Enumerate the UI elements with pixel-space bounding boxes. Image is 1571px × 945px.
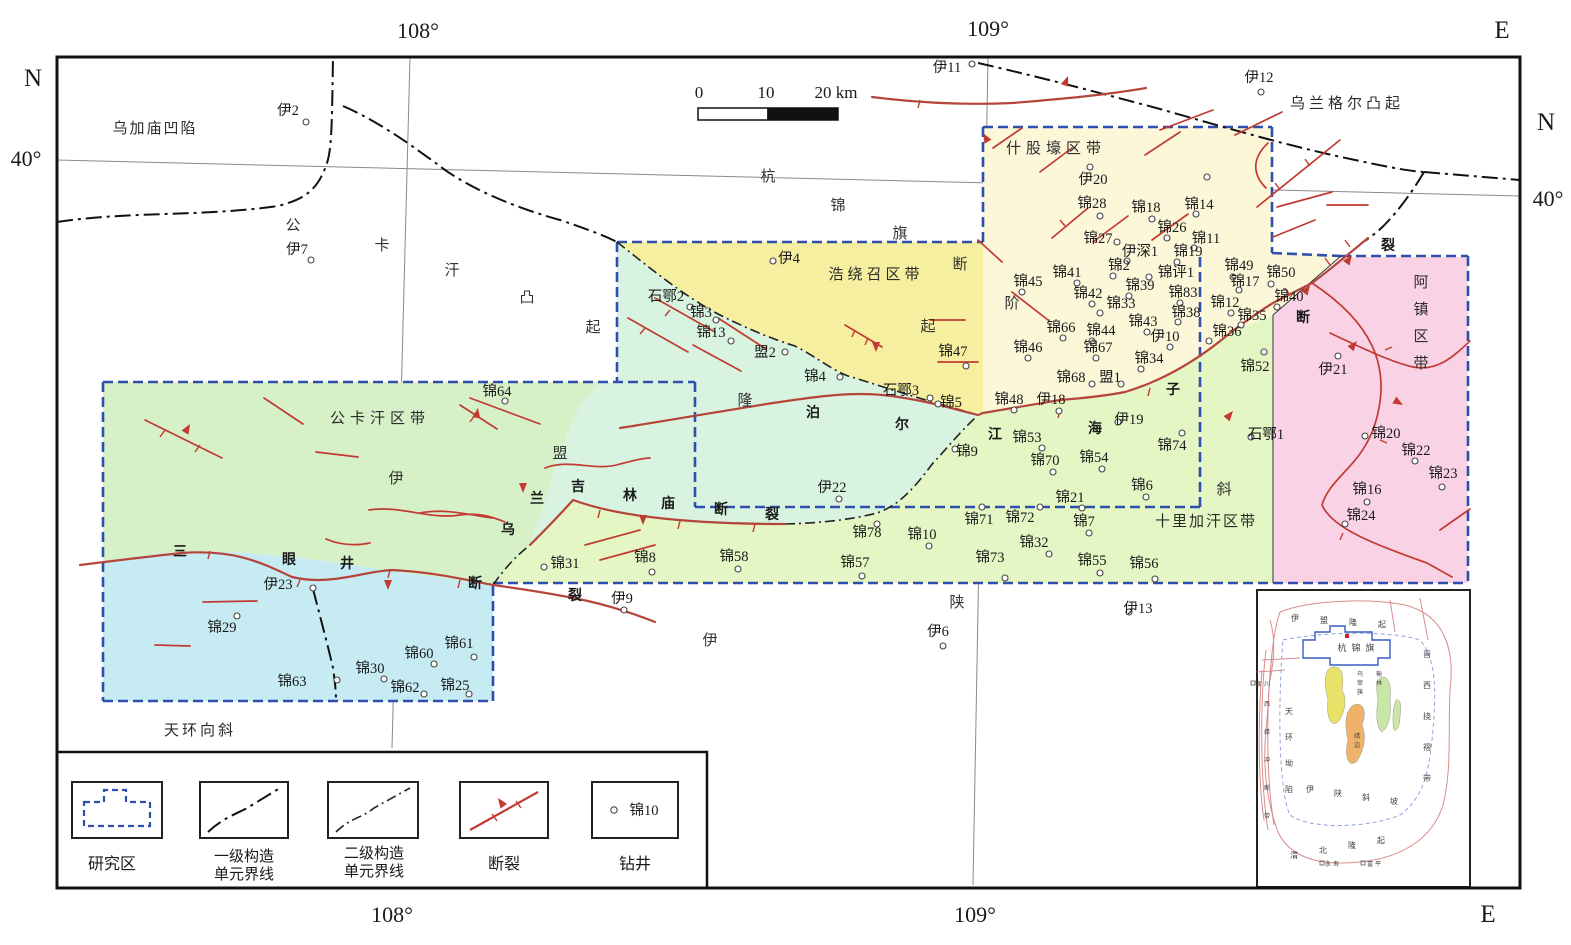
inset-label-char: 陕 xyxy=(1334,788,1342,798)
well-marker xyxy=(1261,349,1267,355)
fault-name-char: 子 xyxy=(1166,382,1180,398)
place-char: 卡 xyxy=(374,237,389,254)
well-marker xyxy=(859,573,865,579)
compass-n-left: N xyxy=(24,65,42,92)
well-name: 锦68 xyxy=(1057,369,1086,386)
well-name: 锦44 xyxy=(1087,322,1117,339)
inset-label-char: 川 xyxy=(1264,681,1270,688)
well-marker xyxy=(1056,408,1062,414)
well-name: 锦71 xyxy=(965,511,994,528)
well-marker xyxy=(334,677,340,683)
legend-label-well: 钻井 xyxy=(619,855,651,873)
inset-label-char: 西 xyxy=(1264,701,1270,708)
inset-label-char: 带 xyxy=(1423,774,1431,783)
well-name: 石鄂2 xyxy=(648,288,684,305)
well-marker xyxy=(963,363,969,369)
place-char: 陕 xyxy=(949,594,964,611)
geologic-map: 三眼井断裂乌兰吉林庙断裂泊尔江海子断裂 乌加庙凹陷公卡汗区带浩绕召区带什股壕区带… xyxy=(0,0,1571,945)
well-name: 锦35 xyxy=(1238,307,1267,324)
well-marker xyxy=(1206,338,1212,344)
compass-e-top: E xyxy=(1494,17,1509,44)
well-marker xyxy=(1268,281,1274,287)
well-name: 锦53 xyxy=(1013,429,1042,446)
well-marker xyxy=(1089,381,1095,387)
well-marker xyxy=(308,257,314,263)
well-name: 伊2 xyxy=(277,102,299,119)
legend-label-study-area: 研究区 xyxy=(88,855,136,873)
well-name: 锦66 xyxy=(1047,319,1076,336)
well-marker xyxy=(1439,484,1445,490)
inset-label-char: 坡 xyxy=(1390,796,1398,806)
scale-bar-left xyxy=(698,108,768,120)
well-marker xyxy=(1037,504,1043,510)
well-marker xyxy=(1099,466,1105,472)
inset-label-char: 陷 xyxy=(1285,784,1293,794)
well-marker xyxy=(926,543,932,549)
inset-label-char: 寿 xyxy=(1333,860,1339,868)
inset-label-char: 渭 xyxy=(1290,850,1298,860)
well-name: 锦63 xyxy=(278,673,307,690)
inset-label-char: 坳 xyxy=(1285,758,1293,768)
well-name: 伊4 xyxy=(778,250,800,267)
map-figure: 三眼井断裂乌兰吉林庙断裂泊尔江海子断裂 乌加庙凹陷公卡汗区带浩绕召区带什股壕区带… xyxy=(0,0,1571,945)
well-name: 锦36 xyxy=(1213,323,1242,340)
well-name: 锦34 xyxy=(1135,350,1165,367)
well-name: 锦73 xyxy=(976,549,1005,566)
inset-label-char: 审 xyxy=(1357,679,1363,687)
lon-109-bottom: 109° xyxy=(954,902,996,927)
well-marker xyxy=(471,654,477,660)
well-marker xyxy=(770,258,776,264)
well-name: 锦39 xyxy=(1126,277,1155,294)
fault-name-char: 泊 xyxy=(806,404,820,421)
well-name: 锦46 xyxy=(1014,339,1043,356)
lon-109-top: 109° xyxy=(967,16,1009,41)
well-name: 锦22 xyxy=(1402,442,1431,459)
well-marker xyxy=(1364,499,1370,505)
well-name: 锦7 xyxy=(1073,513,1095,530)
inset-label-char: 斜 xyxy=(1362,792,1370,802)
well-name: 锦32 xyxy=(1020,534,1049,551)
well-name: 伊20 xyxy=(1079,171,1108,188)
well-marker xyxy=(303,119,309,125)
well-name: 锦56 xyxy=(1130,555,1159,572)
region-label: 浩绕召区带 xyxy=(828,266,923,283)
well-name: 锦47 xyxy=(939,343,968,360)
inset-label-char: 靖 xyxy=(1354,732,1360,740)
well-name: 盟2 xyxy=(754,345,776,361)
region-label-char: 区 xyxy=(1413,329,1428,345)
scale-10: 10 xyxy=(758,83,775,102)
well-name: 锦45 xyxy=(1014,273,1043,290)
well-marker xyxy=(1149,216,1155,222)
well-name: 锦72 xyxy=(1006,509,1035,526)
place-char: 锦 xyxy=(830,197,845,214)
well-name: 锦33 xyxy=(1107,295,1136,312)
well-name: 锦60 xyxy=(405,645,434,662)
place-char: 斜 xyxy=(1216,481,1231,498)
inset-label-char: 西 xyxy=(1423,681,1431,690)
inset-label-char: 断 xyxy=(1264,784,1270,792)
well-name: 石鄂1 xyxy=(1248,426,1284,443)
legend-label-second-order-2: 单元界线 xyxy=(344,863,404,880)
well-name: 锦52 xyxy=(1241,358,1270,375)
well-marker xyxy=(1097,213,1103,219)
well-name: 锦58 xyxy=(720,548,749,565)
well-name: 伊21 xyxy=(1319,361,1348,378)
fault-name-char: 兰 xyxy=(530,490,544,507)
well-name: 伊23 xyxy=(264,576,293,593)
fault-name-char: 断 xyxy=(1296,309,1310,326)
well-marker xyxy=(837,374,843,380)
inset-label-char: 边 xyxy=(1354,741,1360,749)
well-name: 锦评1 xyxy=(1158,264,1194,281)
well-name: 锦70 xyxy=(1031,452,1060,469)
well-name: 锦10 xyxy=(908,526,937,543)
inset-label-char: 挠 xyxy=(1423,711,1431,721)
well-name: 锦17 xyxy=(1231,273,1260,290)
region-label-char: 镇 xyxy=(1413,301,1428,318)
inset-label-char: 环 xyxy=(1285,733,1293,742)
compass-e-bottom: E xyxy=(1480,901,1495,928)
place-char: 隆 xyxy=(737,392,752,409)
lon-108-bottom: 108° xyxy=(371,902,413,927)
well-name: 锦5 xyxy=(940,394,962,411)
well-marker xyxy=(979,504,985,510)
inset-label-char: 锦 xyxy=(1351,642,1360,653)
well-name: 锦78 xyxy=(853,524,882,541)
well-marker xyxy=(234,613,240,619)
fault-name-char: 井 xyxy=(340,555,354,572)
lat-40-right: 40° xyxy=(1533,186,1564,211)
well-marker xyxy=(1002,575,1008,581)
fault-name-char: 断 xyxy=(714,501,728,518)
region-label: 乌兰格尔凸起 xyxy=(1290,95,1404,112)
well-name: 锦12 xyxy=(1211,294,1240,311)
inset-label-char: 冲 xyxy=(1264,756,1270,764)
well-name: 锦4 xyxy=(804,368,826,385)
well-marker xyxy=(1258,89,1264,95)
well-name: 锦61 xyxy=(445,635,474,652)
well-name: 伊19 xyxy=(1115,411,1144,428)
well-name: 锦20 xyxy=(1372,425,1401,442)
well-marker xyxy=(1087,164,1093,170)
well-石鄂1: 石鄂1 xyxy=(1248,426,1284,443)
well-name: 锦41 xyxy=(1053,264,1082,281)
well-name: 锦67 xyxy=(1084,339,1113,356)
region-label: 十里加汗区带 xyxy=(1155,513,1257,530)
well-name: 锦13 xyxy=(697,324,726,341)
well-name: 伊13 xyxy=(1124,600,1153,617)
well-name: 伊22 xyxy=(818,479,847,496)
well-name: 锦64 xyxy=(483,383,513,400)
fault-name-char: 三 xyxy=(173,545,187,560)
well-marker xyxy=(1086,530,1092,536)
well-name: 锦26 xyxy=(1158,219,1187,236)
well-name: 伊12 xyxy=(1245,69,1274,86)
fault-name-char: 吉 xyxy=(571,478,585,495)
well-symbol xyxy=(611,807,617,813)
fault-name-char: 海 xyxy=(1088,420,1102,437)
fault-name-char: 断 xyxy=(468,575,482,592)
fault-name-char: 乌 xyxy=(501,521,515,538)
fault-name-char: 林 xyxy=(623,487,637,504)
well-name: 锦29 xyxy=(208,619,237,636)
well-伊19: 伊19 xyxy=(1115,411,1144,428)
inset-label-char: 杭 xyxy=(1337,642,1346,653)
inset-label-char: 伊 xyxy=(1291,613,1299,623)
well-name: 锦43 xyxy=(1129,313,1158,330)
inset-label-char: 起 xyxy=(1377,836,1385,845)
well-name: 锦74 xyxy=(1158,437,1188,454)
well-name: 锦54 xyxy=(1080,449,1110,466)
well-name: 锦50 xyxy=(1267,264,1296,281)
well-name: 锦55 xyxy=(1078,552,1107,569)
well-盟1: 盟1 xyxy=(1099,370,1124,387)
well-name: 锦24 xyxy=(1347,507,1377,524)
well-name: 锦30 xyxy=(356,660,385,677)
well-marker xyxy=(927,395,933,401)
inset-label-char: 隆 xyxy=(1349,617,1357,627)
well-name: 锦14 xyxy=(1185,196,1215,213)
well-marker xyxy=(1046,551,1052,557)
place-char: 伊 xyxy=(702,632,717,649)
inset-label-char: 伊 xyxy=(1306,784,1314,794)
well-name: 伊6 xyxy=(927,623,949,640)
well-name: 锦8 xyxy=(634,549,656,566)
well-name: 盟1 xyxy=(1099,370,1121,386)
inset-label-char: 平 xyxy=(1375,861,1381,868)
fault-name-char: 江 xyxy=(988,426,1002,443)
well-name: 锦16 xyxy=(1353,481,1382,498)
well-marker xyxy=(1335,353,1341,359)
well-name: 伊11 xyxy=(933,59,961,76)
place-char: 起 xyxy=(920,318,935,335)
inset-label-char: 隆 xyxy=(1348,840,1356,850)
inset-label-char: 榆 xyxy=(1376,670,1382,678)
place-char: 汗 xyxy=(444,262,459,279)
fault-name-char: 眼 xyxy=(282,552,296,568)
inset-label-char: 褶 xyxy=(1423,742,1431,752)
scale-20km: 20 km xyxy=(815,83,858,102)
inset-label-char: 富 xyxy=(1367,860,1373,868)
place-char: 盟 xyxy=(552,446,567,462)
well-name: 锦3 xyxy=(690,304,712,321)
well-marker xyxy=(310,585,316,591)
well-name: 锦48 xyxy=(995,391,1024,408)
region-label: 乌加庙凹陷 xyxy=(112,120,197,137)
well-name: 锦27 xyxy=(1084,230,1113,247)
well-name: 石鄂3 xyxy=(883,382,919,399)
well-marker xyxy=(940,643,946,649)
place-char: 旗 xyxy=(892,225,907,242)
inset-label-char: 乌 xyxy=(1357,670,1363,678)
well-name: 锦57 xyxy=(841,554,870,571)
legend-label-first-order-1: 一级构造 xyxy=(214,848,274,865)
inset-label-char: 晋 xyxy=(1423,650,1431,659)
well-marker xyxy=(1097,570,1103,576)
region-azhen xyxy=(1273,257,1468,583)
place-char: 公 xyxy=(285,218,300,234)
well-name: 锦28 xyxy=(1078,195,1107,212)
well-name: 锦83 xyxy=(1169,284,1198,301)
well-marker xyxy=(735,566,741,572)
region-label: 公卡汗区带 xyxy=(330,410,430,427)
well-name: 锦49 xyxy=(1225,257,1254,274)
well-marker xyxy=(1204,174,1210,180)
well-unnamed xyxy=(1204,174,1210,180)
inset-label-char: 缘 xyxy=(1264,728,1270,736)
inset-label-char: 旗 xyxy=(1357,688,1363,696)
well-marker xyxy=(1050,469,1056,475)
inset-label-char: 永 xyxy=(1325,860,1331,868)
well-marker xyxy=(1152,576,1158,582)
well-锦9: 锦9 xyxy=(952,443,978,460)
place-char: 凸 xyxy=(519,290,534,306)
inset-label-char: 银 xyxy=(1255,680,1261,688)
well-name: 锦31 xyxy=(551,555,580,572)
fault-name-char: 裂 xyxy=(567,587,582,604)
well-marker xyxy=(421,691,427,697)
well-marker xyxy=(782,349,788,355)
inset-field-yellow xyxy=(1325,667,1345,724)
legend-label-first-order-2: 单元界线 xyxy=(214,866,274,883)
fault-name-char: 尔 xyxy=(895,416,909,433)
region-label: 天环向斜 xyxy=(164,722,236,739)
place-char: 断 xyxy=(952,256,967,273)
well-symbol-label: 锦10 xyxy=(630,802,659,819)
compass-n-right: N xyxy=(1537,109,1555,136)
well-marker xyxy=(541,564,547,570)
well-name: 锦6 xyxy=(1131,477,1153,494)
well-marker xyxy=(1114,239,1120,245)
well-name: 锦38 xyxy=(1172,304,1201,321)
well-marker xyxy=(1143,494,1149,500)
well-marker xyxy=(713,317,719,323)
inset-label-char: 北 xyxy=(1319,846,1327,855)
fault-name-char: 庙 xyxy=(661,495,675,512)
well-name: 锦25 xyxy=(441,677,470,694)
well-marker xyxy=(969,61,975,67)
region-label: 什股壕区带 xyxy=(1006,139,1106,157)
well-name: 锦40 xyxy=(1275,288,1304,305)
inset-label-char: 盟 xyxy=(1320,616,1328,625)
lon-108-top: 108° xyxy=(397,18,439,43)
inset-label-char: 带 xyxy=(1264,812,1270,820)
scale-0: 0 xyxy=(695,83,704,102)
legend-label-fault: 断裂 xyxy=(488,855,520,873)
well-name: 伊7 xyxy=(286,241,308,258)
well-name: 伊18 xyxy=(1037,391,1066,408)
well-name: 伊10 xyxy=(1151,328,1180,345)
inset-label-char: 旗 xyxy=(1365,642,1374,653)
well-marker xyxy=(1362,433,1368,439)
inset-label-char: 林 xyxy=(1376,679,1382,687)
scale-bar-right xyxy=(768,108,838,120)
well-name: 伊9 xyxy=(611,590,633,607)
well-marker xyxy=(728,338,734,344)
place-char: 伊 xyxy=(388,470,403,487)
fault-name-char: 裂 xyxy=(764,506,779,523)
well-marker xyxy=(1097,310,1103,316)
region-label-char: 带 xyxy=(1413,355,1428,372)
inset-map: 伊盟隆起杭锦旗晋西挠褶带天环坳陷西缘冲断带伊陕斜坡渭北隆起银川乌审旗榆林靖边永寿… xyxy=(1251,590,1470,887)
well-伊13: 伊13 xyxy=(1124,600,1153,617)
well-name: 锦19 xyxy=(1174,243,1203,260)
well-name: 锦9 xyxy=(956,443,978,460)
region-label-char: 阿 xyxy=(1413,274,1428,291)
well-name: 锦18 xyxy=(1132,199,1161,216)
inset-label-char: 天 xyxy=(1285,707,1293,716)
well-name: 锦21 xyxy=(1056,489,1085,506)
well-marker xyxy=(836,496,842,502)
well-marker xyxy=(621,607,627,613)
legend: 锦10 研究区 一级构造 单元界线 二级构造 单元界线 断裂 钻井 xyxy=(57,752,707,888)
well-name: 锦23 xyxy=(1429,465,1458,482)
fault-name-char: 裂 xyxy=(1380,237,1395,254)
place-char: 杭 xyxy=(760,168,775,185)
well-name: 锦2 xyxy=(1108,257,1130,274)
inset-label-char: 起 xyxy=(1378,620,1386,629)
well-name: 锦62 xyxy=(391,679,420,696)
well-name: 锦42 xyxy=(1074,285,1103,302)
legend-label-second-order-1: 二级构造 xyxy=(344,845,404,862)
place-char: 阶 xyxy=(1004,295,1019,312)
well-marker xyxy=(649,569,655,575)
place-char: 起 xyxy=(585,319,600,336)
well-marker xyxy=(1179,430,1185,436)
inset-study-area-marker xyxy=(1345,634,1349,638)
lat-40-left: 40° xyxy=(11,146,42,171)
